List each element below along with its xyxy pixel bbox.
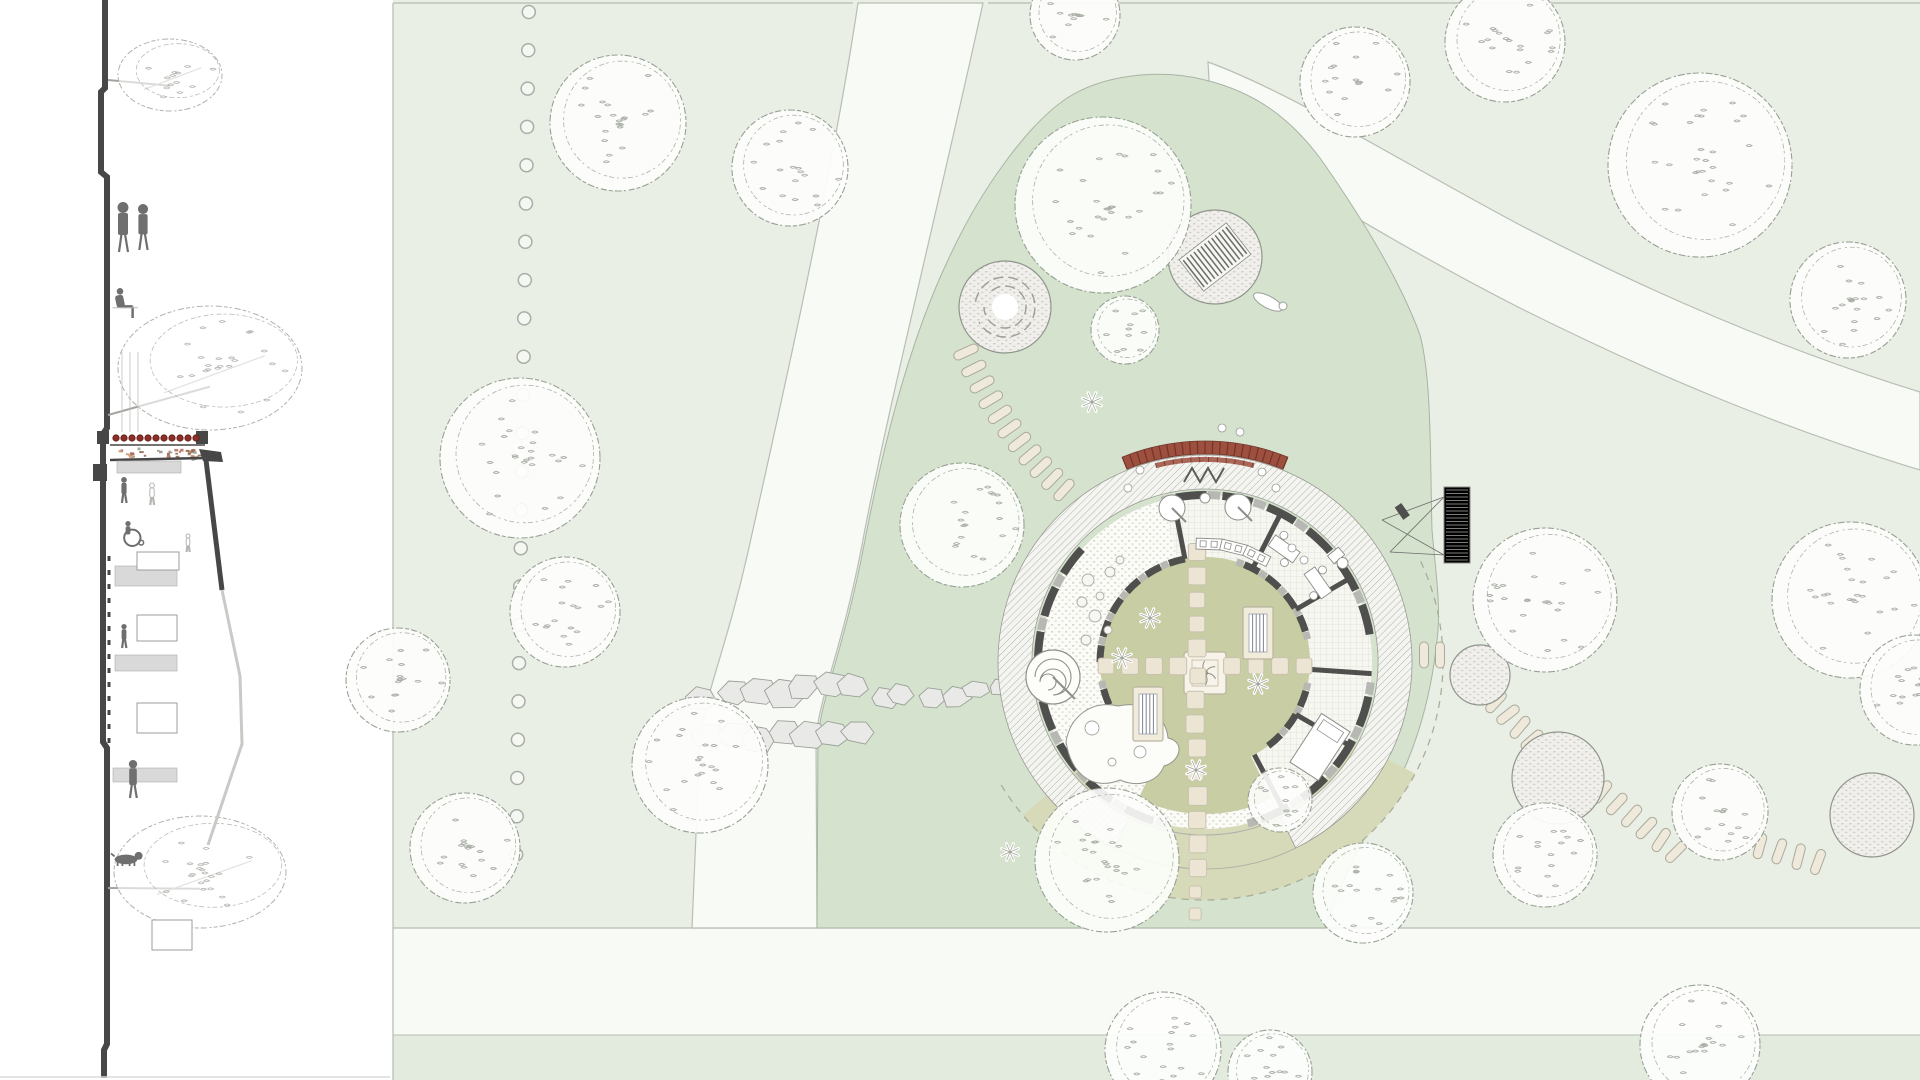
chair xyxy=(1258,468,1266,476)
pebble xyxy=(1089,610,1101,622)
section-tree xyxy=(108,306,302,430)
tree xyxy=(440,378,600,538)
tree xyxy=(1035,788,1179,932)
paver xyxy=(1146,658,1163,675)
tree xyxy=(900,463,1024,587)
paver xyxy=(1188,739,1206,757)
section-figure-stand xyxy=(121,624,126,648)
paver xyxy=(1248,658,1264,674)
paver xyxy=(1224,658,1241,675)
section-furniture xyxy=(152,920,192,950)
section-figure-stand xyxy=(129,760,137,798)
tree xyxy=(1300,27,1410,137)
paver xyxy=(1186,715,1204,733)
tree xyxy=(410,793,520,903)
pebble xyxy=(1116,556,1124,564)
tree xyxy=(1608,73,1792,257)
section-figure-sit xyxy=(113,288,139,318)
tree xyxy=(1790,242,1906,358)
play-pad xyxy=(1830,773,1914,857)
paver xyxy=(1296,658,1312,674)
section-furniture xyxy=(137,552,179,570)
paver xyxy=(1189,592,1205,608)
tree xyxy=(1313,843,1413,943)
pebble xyxy=(1104,626,1112,634)
paver xyxy=(1189,886,1201,898)
chair xyxy=(1218,424,1226,432)
pebble xyxy=(1096,592,1104,600)
counter xyxy=(1196,538,1222,550)
striped-planter xyxy=(1243,607,1273,659)
spiral-mound-pad xyxy=(959,261,1051,353)
paver xyxy=(1188,567,1206,585)
chair xyxy=(1136,466,1144,474)
paver xyxy=(1189,811,1206,828)
section-figure-ghost xyxy=(150,483,155,505)
section-figure-stand xyxy=(121,477,127,503)
tree xyxy=(1015,117,1191,293)
tree xyxy=(632,697,768,833)
section-facade-edge xyxy=(208,590,242,845)
chair xyxy=(1236,428,1244,436)
site-plan-svg xyxy=(0,0,1920,1080)
chair xyxy=(1124,484,1132,492)
tree xyxy=(1473,528,1617,672)
paver xyxy=(1188,639,1206,657)
tree xyxy=(1091,296,1159,364)
section-figure-wheel xyxy=(124,521,143,546)
tree xyxy=(346,628,450,732)
pebble xyxy=(1077,597,1087,607)
paver xyxy=(1190,668,1206,684)
tree xyxy=(732,110,848,226)
stepping-stone xyxy=(1420,642,1429,668)
chair xyxy=(1300,556,1308,564)
striped-planter xyxy=(1133,687,1163,741)
building-section-drawing xyxy=(0,0,390,1078)
tree xyxy=(1493,803,1597,907)
tree xyxy=(510,557,620,667)
paver xyxy=(1189,835,1207,853)
tree xyxy=(1672,764,1768,860)
section-tree xyxy=(108,39,222,111)
architectural-site-plan xyxy=(0,0,1920,1080)
pebble xyxy=(1081,635,1091,645)
paver xyxy=(1169,657,1186,674)
section-slab xyxy=(115,655,177,671)
section-ground-line xyxy=(101,0,107,1078)
section-furniture xyxy=(137,615,177,641)
section-slab xyxy=(117,461,181,473)
section-figure-stand xyxy=(138,204,148,250)
stepping-stone xyxy=(1436,642,1445,668)
section-slab xyxy=(113,768,177,782)
chair xyxy=(1272,484,1280,492)
pebble xyxy=(1082,574,1094,586)
paver xyxy=(1098,658,1114,674)
paver xyxy=(1189,859,1206,876)
paver xyxy=(1189,616,1205,632)
spiral-feature xyxy=(1026,650,1080,704)
section-tree xyxy=(108,816,286,928)
chair xyxy=(1288,544,1296,552)
pebble xyxy=(1105,567,1115,577)
section-figure-stand xyxy=(118,202,129,252)
section-figure-ghost xyxy=(186,534,190,552)
paver xyxy=(1189,908,1201,920)
section-furniture xyxy=(137,703,177,733)
paver xyxy=(1187,691,1205,709)
tree xyxy=(1248,768,1312,832)
tree xyxy=(550,55,686,191)
paver xyxy=(1272,658,1289,675)
paver xyxy=(1188,787,1207,806)
